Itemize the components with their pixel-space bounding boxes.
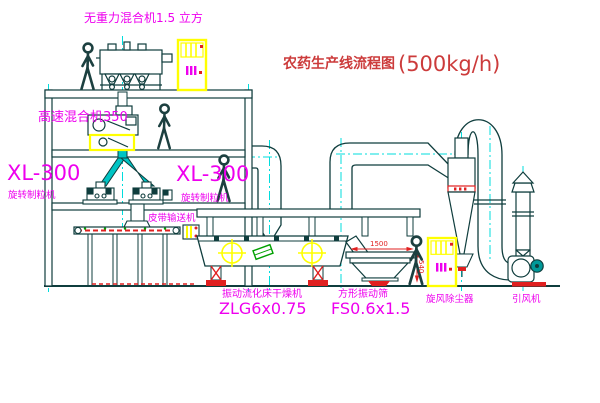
worker-floor3	[158, 105, 170, 149]
exhaust-stack	[512, 172, 534, 262]
control-cabinet-1	[178, 40, 206, 90]
dim-screen-length: 1500	[370, 240, 388, 248]
diagram-svg: 无重力混合机1.5 立方 高速混合机350 XL-300 旋转制粒机 XL-30…	[0, 0, 600, 403]
label-high-speed-mixer: 高速混合机350	[38, 109, 128, 125]
dryer-feet	[206, 266, 328, 286]
induced-draft-fan	[508, 256, 546, 287]
belt-conveyor	[74, 227, 195, 286]
page-title-capacity: (500kg/h)	[398, 52, 500, 76]
control-cabinet-2	[428, 238, 456, 286]
flow-diagram: 无重力混合机1.5 立方 高速混合机350 XL-300 旋转制粒机 XL-30…	[0, 0, 600, 403]
label-cyclone: 旋风除尘器	[426, 293, 474, 305]
gravity-mixer	[96, 42, 172, 90]
label-gravity-mixer: 无重力混合机1.5 立方	[84, 10, 203, 25]
label-belt-conveyor: 皮带输送机	[148, 212, 196, 224]
label-screen-model: FS0.6x1.5	[331, 299, 410, 318]
label-granulator-right: 旋转制粒机	[181, 192, 229, 204]
label-xl300-right: XL-300	[176, 162, 249, 186]
dryer-inlet-duct	[252, 146, 281, 242]
vibrating-screen	[346, 248, 419, 287]
label-xl300-left: XL-300	[7, 161, 80, 185]
label-fan: 引风机	[512, 293, 541, 305]
granulator-left-unit	[83, 182, 117, 204]
page-title: 农药生产线流程图	[282, 55, 395, 72]
dryer-exhaust-duct	[330, 143, 450, 209]
dim-screen-height: 540	[417, 260, 425, 273]
label-dryer-model: ZLG6x0.75	[219, 299, 307, 318]
label-granulator-left: 旋转制粒机	[8, 189, 56, 201]
granulator-right-unit	[129, 182, 172, 204]
worker-roof	[82, 44, 94, 89]
